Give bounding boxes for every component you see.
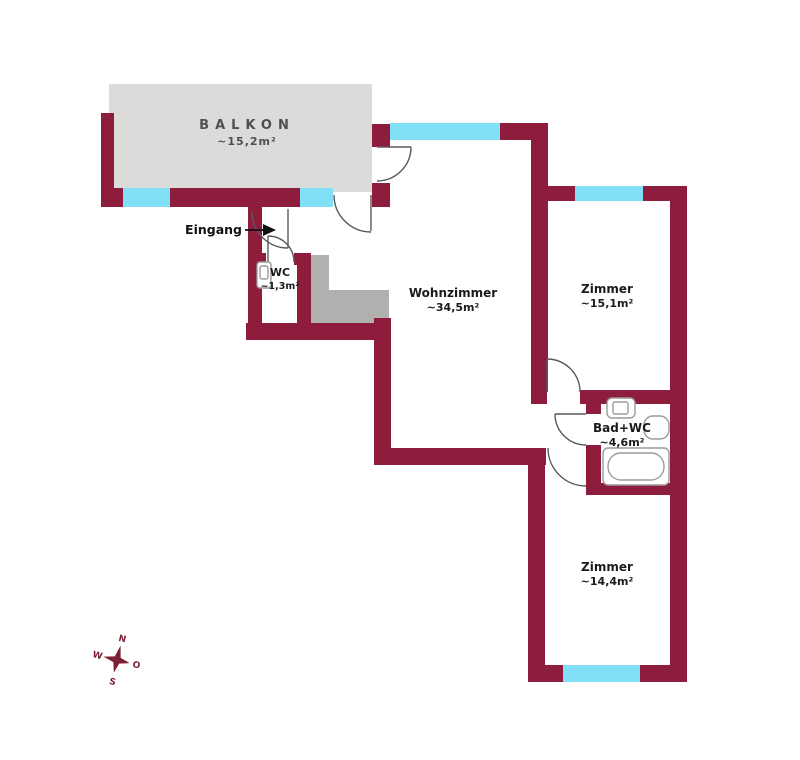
room-name: WC	[261, 266, 300, 281]
door-swing-icon	[547, 359, 580, 392]
room-area: ~14,4m²	[581, 575, 634, 590]
room-name: Zimmer	[581, 559, 634, 575]
wall-segment	[531, 123, 548, 392]
wall-segment	[640, 665, 687, 682]
compass-south-label: S	[108, 677, 117, 688]
room-label-wohnzimmer: Wohnzimmer ~34,5m²	[409, 285, 497, 316]
window-pane	[563, 665, 640, 682]
compass-east-label: O	[131, 660, 141, 672]
wall-segment	[248, 207, 262, 323]
wall-segment	[170, 188, 300, 207]
wall-segment	[586, 483, 672, 495]
door-swing-icon	[334, 195, 371, 232]
wall-segment	[248, 253, 266, 265]
room-area: ~1,3m²	[261, 281, 300, 294]
room-area: ~15,1m²	[581, 297, 634, 312]
wall-segment	[531, 186, 575, 201]
wall-segment	[670, 186, 687, 682]
door-swing-icon	[548, 448, 586, 486]
compass-west-label: W	[91, 650, 103, 662]
room-label-zimmer-1: Zimmer ~15,1m²	[581, 281, 634, 312]
compass-rose-icon: N O S W	[86, 629, 147, 693]
floor-plan-canvas: N O S W BALKON ~15,2m² WC ~1,3m² Wohnzim…	[0, 0, 800, 760]
room-area: ~34,5m²	[409, 301, 497, 316]
room-name: Zimmer	[581, 281, 634, 297]
window-pane	[575, 186, 643, 201]
room-area: ~4,6m²	[593, 436, 651, 451]
entrance-label: Eingang	[184, 222, 242, 237]
room-label-zimmer-2: Zimmer ~14,4m²	[581, 559, 634, 590]
window-pane	[390, 123, 500, 140]
window-pane	[123, 188, 170, 207]
room-area: ~15,2m²	[199, 135, 295, 150]
wall-segment	[528, 458, 545, 682]
wall-segment	[372, 183, 390, 207]
wall-segment	[586, 404, 601, 414]
wall-segment	[101, 188, 123, 207]
wall-segment	[246, 323, 389, 340]
room-name: Bad+WC	[593, 420, 651, 436]
wall-segment	[531, 390, 547, 404]
room-label-wc: WC ~1,3m²	[261, 266, 300, 294]
room-name: BALKON	[199, 117, 295, 135]
door-swing-icon	[377, 147, 411, 181]
wall-segment	[372, 124, 390, 147]
room-name: Wohnzimmer	[409, 285, 497, 301]
wall-segment	[580, 390, 672, 404]
bathtub-icon	[603, 448, 669, 485]
wall-segment	[374, 448, 546, 465]
door-swing-icon	[555, 414, 586, 445]
window-pane	[300, 188, 333, 207]
wall-segment	[528, 665, 563, 682]
room-label-balkon: BALKON ~15,2m²	[199, 117, 295, 149]
door-swing-icon	[268, 236, 294, 262]
room-label-bad-wc: Bad+WC ~4,6m²	[593, 420, 651, 451]
compass-north-label: N	[117, 634, 127, 646]
wall-segment	[374, 318, 391, 465]
